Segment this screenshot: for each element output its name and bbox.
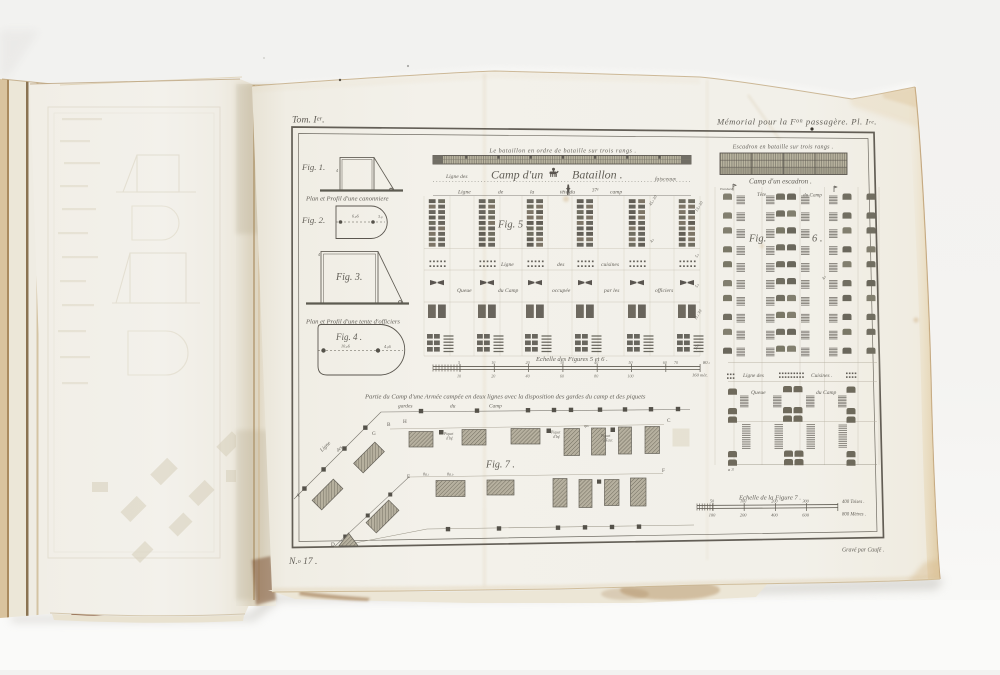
svg-text:de: de [498, 190, 504, 196]
svg-text:4.p6: 4.p6 [384, 344, 392, 349]
svg-text:6.p6: 6.p6 [352, 214, 360, 219]
svg-text:la: la [530, 190, 535, 196]
svg-text:Piquet: Piquet [550, 431, 561, 435]
svg-text:Echelle de la Figure 7 .: Echelle de la Figure 7 . [738, 495, 801, 502]
svg-text:Ligne des: Ligne des [742, 373, 764, 379]
svg-text:100: 100 [740, 499, 747, 504]
svg-text:70: 70 [674, 360, 678, 365]
svg-text:Gravé par Caufé .: Gravé par Caufé . [842, 547, 884, 554]
svg-text:5: 5 [458, 360, 460, 365]
svg-text:4: 4 [336, 168, 338, 173]
svg-text:400: 400 [771, 513, 778, 518]
svg-text:4: 4 [318, 252, 320, 257]
svg-text:du Camp: du Camp [816, 390, 837, 396]
svg-text:40: 40 [594, 360, 598, 365]
svg-text:80: 80 [594, 374, 598, 379]
svg-text:Queue: Queue [457, 288, 472, 294]
svg-text:B: B [387, 422, 391, 428]
svg-text:Cuisines .: Cuisines . [811, 373, 832, 379]
svg-text:60: 60 [560, 374, 564, 379]
svg-text:800 Mètres .: 800 Mètres . [842, 513, 866, 518]
svg-text:Fig. 5 .: Fig. 5 . [497, 220, 528, 231]
svg-text:Fig. 2.: Fig. 2. [301, 215, 325, 225]
svg-text:300: 300 [802, 499, 809, 504]
svg-text:40: 40 [526, 374, 530, 379]
svg-text:Ligne des: Ligne des [445, 174, 468, 180]
svg-text:H: H [403, 419, 407, 425]
svg-text:N.o 17 .: N.o 17 . [288, 557, 317, 567]
svg-text:60: 60 [663, 360, 667, 365]
svg-text:d'Ecur.: d'Ecur. [603, 439, 613, 443]
svg-text:Ligne: Ligne [500, 262, 514, 268]
svg-text:gardes: gardes [398, 404, 412, 410]
svg-text:200: 200 [740, 513, 747, 518]
svg-text:des: des [557, 262, 564, 268]
svg-text:Etendard: Etendard [719, 187, 733, 191]
svg-text:G: G [372, 431, 376, 437]
svg-text:camp: camp [610, 190, 622, 196]
svg-text:Camp: Camp [489, 404, 502, 410]
svg-text:600: 600 [802, 513, 809, 518]
svg-text:par les: par les [603, 288, 619, 294]
svg-text:100: 100 [709, 513, 716, 518]
svg-text:80.t: 80.t [703, 360, 710, 365]
svg-text:Ligne: Ligne [457, 190, 471, 196]
svg-text:Fig. 4 .: Fig. 4 . [335, 332, 362, 342]
svg-text:Queue: Queue [751, 390, 766, 396]
svg-text:160 mèt.: 160 mèt. [692, 373, 708, 378]
svg-text:400 Toises .: 400 Toises . [842, 500, 865, 505]
svg-text:occupée: occupée [552, 288, 571, 294]
svg-text:20: 20 [491, 374, 495, 379]
svg-text:d'Inf.: d'Inf. [553, 435, 561, 439]
svg-text:Fig. 7 .: Fig. 7 . [485, 460, 515, 471]
svg-text:30: 30 [560, 360, 564, 365]
svg-text:10: 10 [457, 374, 461, 379]
svg-text:A: A [296, 493, 300, 499]
svg-text:Camp d'un escadron .: Camp d'un escadron . [749, 178, 812, 186]
svg-text:10.p6: 10.p6 [341, 344, 351, 349]
svg-text:Camp d'un: Camp d'un [491, 168, 543, 182]
svg-text:qu.t: qu.t [584, 424, 590, 428]
svg-text:F: F [662, 468, 665, 474]
svg-text:cuisines: cuisines [601, 262, 619, 268]
svg-text:a 3: a 3 [728, 467, 734, 472]
svg-text:100: 100 [627, 374, 633, 379]
svg-text:officiers: officiers [655, 287, 673, 294]
svg-text:3.p: 3.p [378, 214, 383, 219]
svg-text:Fig.: Fig. [748, 234, 766, 245]
svg-text:10: 10 [491, 360, 495, 365]
svg-text:d'Inf.: d'Inf. [446, 437, 454, 441]
svg-text:Piquet: Piquet [600, 434, 611, 438]
svg-text:du: du [450, 404, 456, 410]
svg-text:Plan et Profil d'une canonnier: Plan et Profil d'une canonniere [305, 196, 389, 203]
svg-text:C: C [667, 418, 671, 424]
svg-text:Fig. 1.: Fig. 1. [301, 162, 325, 172]
svg-text:Partie du Camp d'une Armée ca: Partie du Camp d'une Armée campée en deu… [364, 394, 646, 401]
svg-text:Le bataillon en ordre de batai: Le bataillon en ordre de bataille sur tr… [488, 149, 636, 155]
svg-text:du Camp: du Camp [498, 288, 519, 294]
svg-text:Piquet: Piquet [443, 432, 454, 436]
svg-text:20: 20 [526, 360, 530, 365]
svg-text:50: 50 [628, 360, 632, 365]
svg-text:Bataillon .: Bataillon . [572, 168, 623, 182]
svg-text:6 .: 6 . [812, 234, 823, 245]
svg-text:200: 200 [771, 499, 778, 504]
svg-text:Fig. 3.: Fig. 3. [335, 272, 362, 283]
svg-text:Escadron en bataille sur trois: Escadron en bataille sur trois rangs . [732, 145, 834, 151]
